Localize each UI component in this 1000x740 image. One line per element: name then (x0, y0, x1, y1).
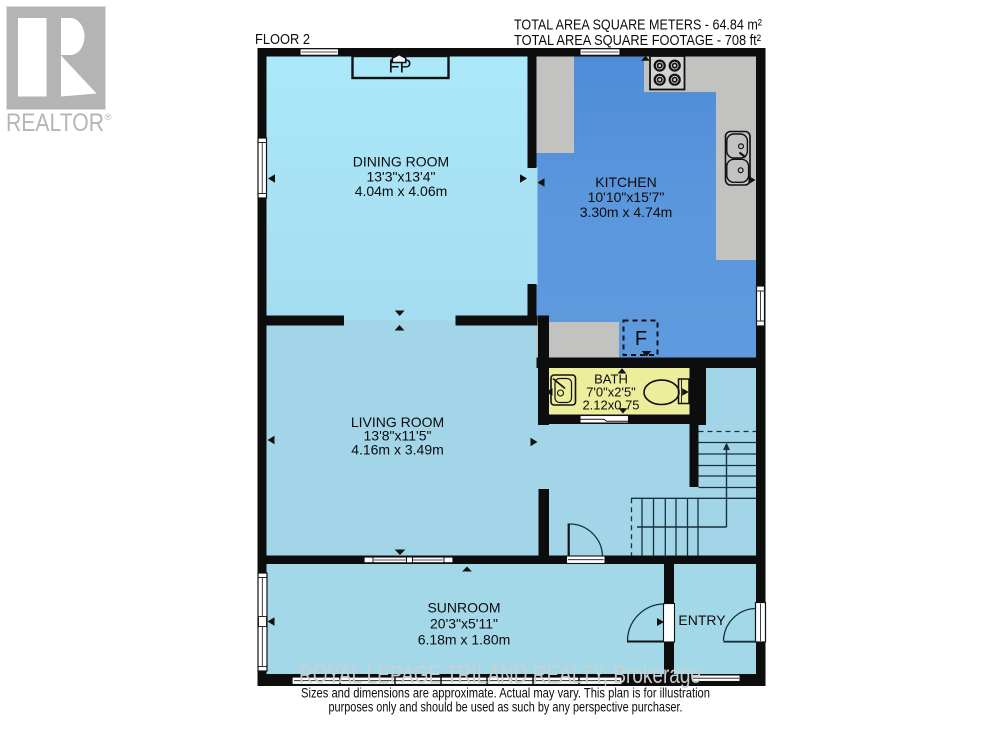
svg-text:20'3"x5'11": 20'3"x5'11" (430, 616, 498, 632)
svg-text:SUNROOM: SUNROOM (427, 600, 500, 616)
svg-text:®: ® (105, 112, 112, 123)
svg-text:3.30m x 4.74m: 3.30m x 4.74m (580, 204, 673, 220)
svg-text:REALTOR: REALTOR (6, 109, 104, 137)
svg-text:FLOOR 2: FLOOR 2 (255, 31, 310, 48)
svg-text:TOTAL AREA SQUARE FOOTAGE - 70: TOTAL AREA SQUARE FOOTAGE - 708 ft² (514, 32, 761, 49)
svg-text:4.16m x 3.49m: 4.16m x 3.49m (351, 442, 444, 458)
svg-text:4.04m x 4.06m: 4.04m x 4.06m (355, 183, 448, 199)
svg-text:purposes only and should be us: purposes only and should be used as such… (329, 699, 683, 715)
svg-text:KITCHEN: KITCHEN (595, 174, 656, 190)
svg-text:6.18m x 1.80m: 6.18m x 1.80m (418, 632, 511, 648)
svg-text:2.12x0.75: 2.12x0.75 (582, 398, 639, 413)
svg-text:10'10"x15'7": 10'10"x15'7" (588, 189, 665, 205)
svg-text:F: F (635, 328, 647, 350)
svg-text:ENTRY: ENTRY (678, 612, 726, 628)
svg-text:DINING ROOM: DINING ROOM (353, 154, 449, 170)
svg-text:TOTAL AREA SQUARE METERS - 64.: TOTAL AREA SQUARE METERS - 64.84 m² (514, 17, 762, 34)
